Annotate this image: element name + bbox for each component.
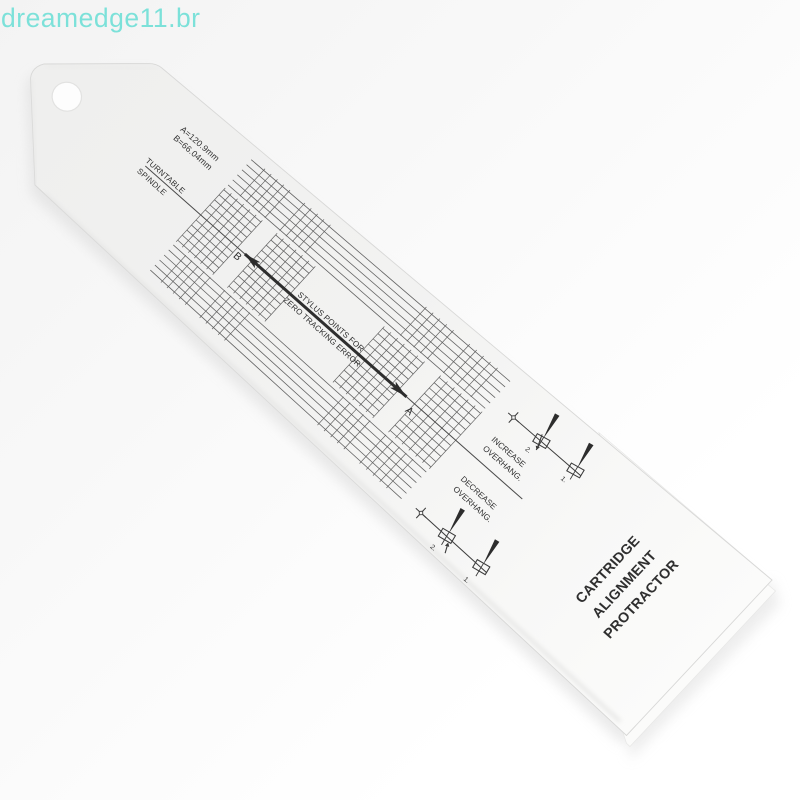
svg-text:dreamedge11.br: dreamedge11.br bbox=[1, 3, 201, 33]
